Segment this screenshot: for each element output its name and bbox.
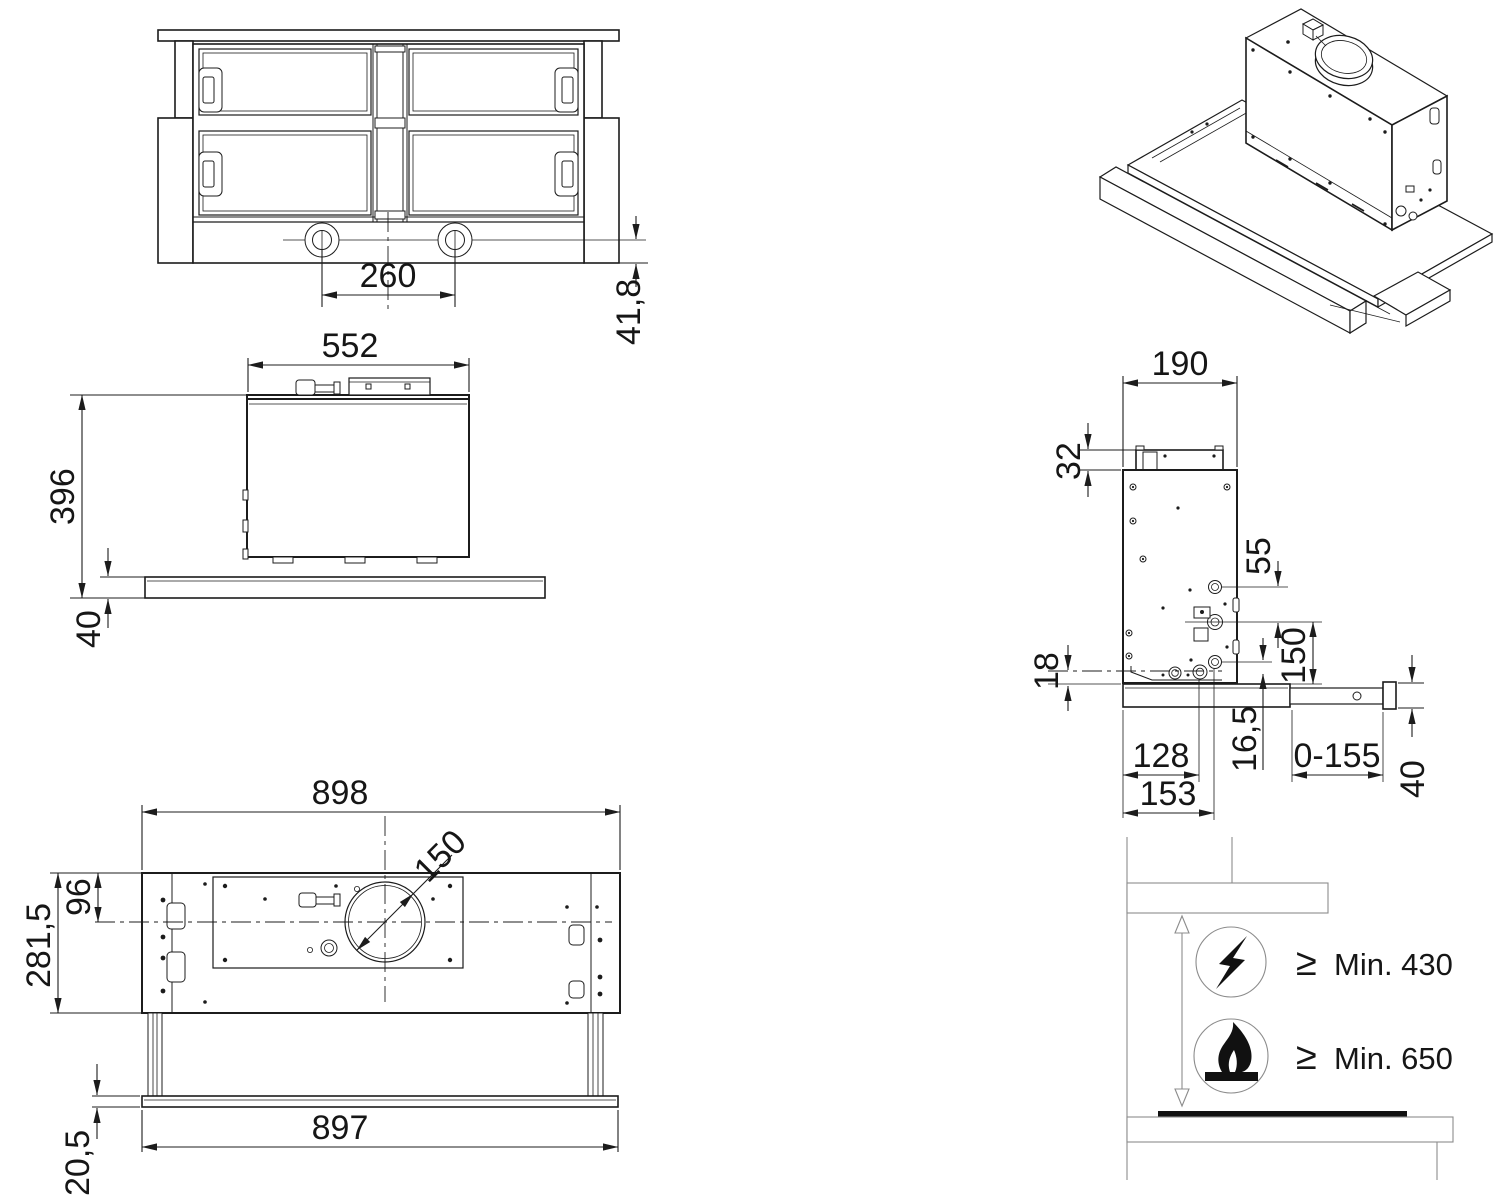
side-view: 190 32 55 150 18 16,5 128 153 0-155 bbox=[1028, 345, 1432, 820]
front-view: 552 396 40 bbox=[44, 327, 545, 648]
dim-lamp-spacing: 260 bbox=[360, 257, 417, 295]
burner-bar-icon bbox=[1205, 1072, 1258, 1081]
dim-body-width: 552 bbox=[322, 327, 379, 365]
clearance-view: ≥ Min. 430 ≥ Min. 650 bbox=[1127, 837, 1453, 1180]
dim-outlet-offset: 150 bbox=[1275, 627, 1313, 684]
electric-gte-symbol: ≥ bbox=[1296, 942, 1317, 984]
dim-side-depth: 190 bbox=[1152, 345, 1209, 383]
dim-top-body-width: 898 bbox=[312, 774, 369, 812]
dim-body-depth: 281,5 bbox=[20, 903, 58, 988]
isometric-view bbox=[1100, 9, 1492, 333]
dim-visor-width: 897 bbox=[312, 1109, 369, 1147]
technical-drawing-page: 260 41,8 552 bbox=[0, 0, 1500, 1200]
dim-front-height: 40 bbox=[1394, 760, 1432, 798]
dim-fitting-depth: 153 bbox=[1140, 775, 1197, 813]
dim-visor-offset: 41,8 bbox=[610, 279, 648, 345]
dim-flange-offset: 16,5 bbox=[1226, 706, 1264, 772]
electric-min-clearance: Min. 430 bbox=[1334, 947, 1453, 982]
gas-min-clearance: Min. 650 bbox=[1334, 1041, 1453, 1076]
gas-gte-symbol: ≥ bbox=[1296, 1036, 1317, 1078]
dim-rear-gap: 18 bbox=[1028, 652, 1066, 690]
dim-visor-thickness: 40 bbox=[70, 610, 108, 648]
dim-collar-height: 32 bbox=[1050, 442, 1088, 480]
top-view: 898 150 96 281,5 20,5 897 bbox=[20, 774, 620, 1196]
dim-fitting-spacing: 55 bbox=[1240, 537, 1278, 575]
dim-visor-drop: 20,5 bbox=[59, 1130, 97, 1196]
cooktop-surface bbox=[1158, 1111, 1407, 1117]
dim-total-height: 396 bbox=[44, 468, 82, 525]
dim-slide-depth: 128 bbox=[1133, 737, 1190, 775]
dim-duct-center-offset: 96 bbox=[60, 878, 98, 916]
hood-dimension-drawing: 260 41,8 552 bbox=[0, 0, 1500, 1200]
dim-visor-travel: 0-155 bbox=[1294, 737, 1381, 775]
bottom-view: 260 41,8 bbox=[158, 30, 648, 345]
